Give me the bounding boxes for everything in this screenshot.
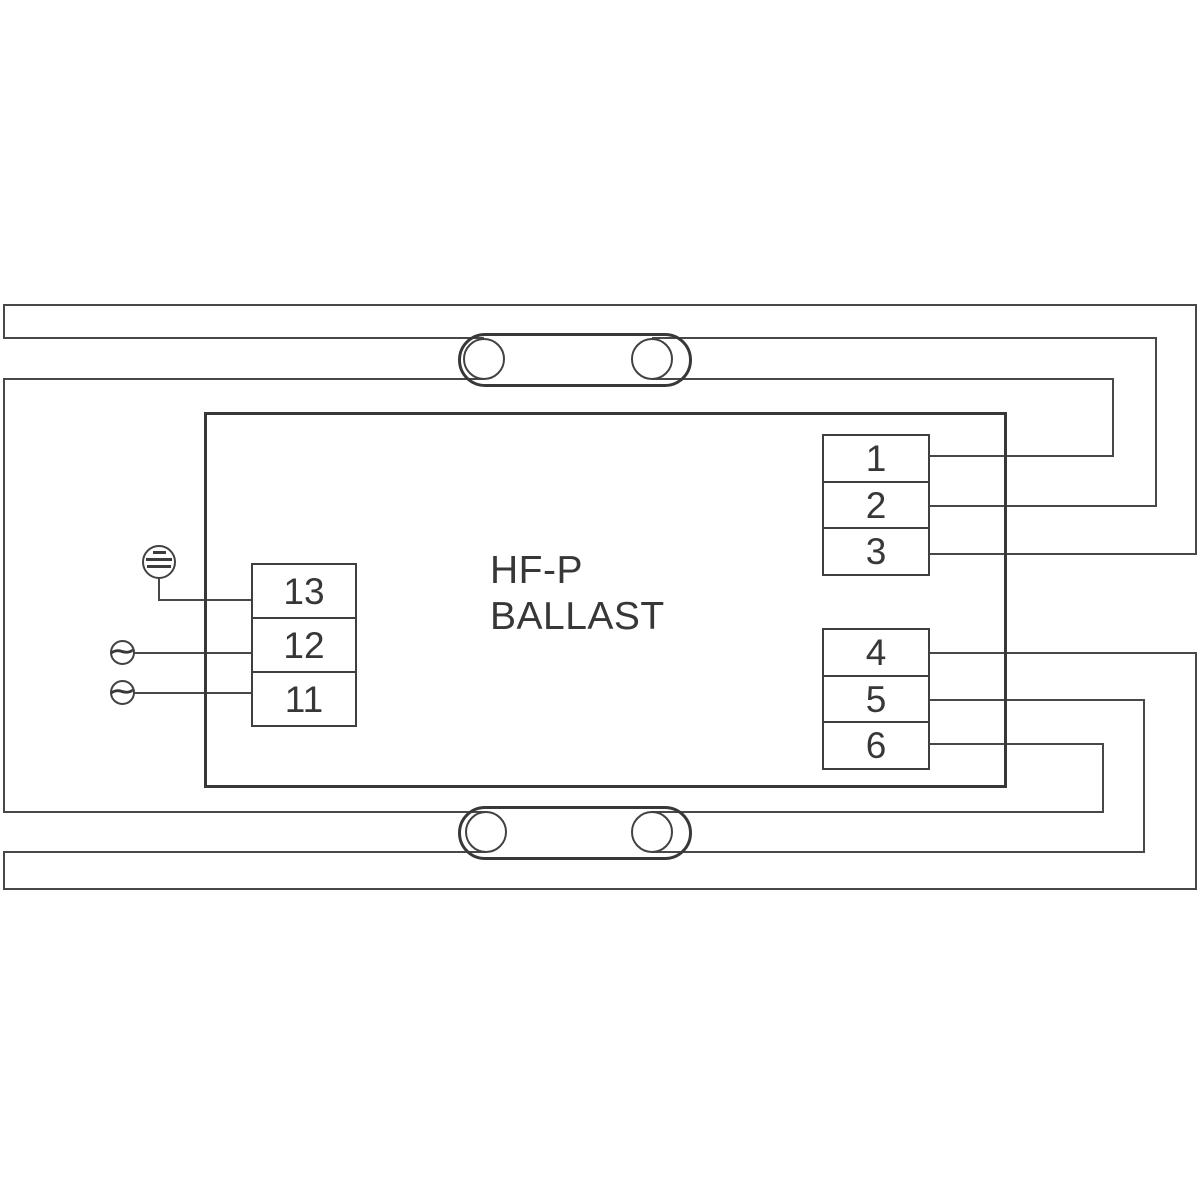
terminal-label: 4 xyxy=(866,634,887,671)
terminal-block-lamp1: 1 2 3 xyxy=(822,434,930,576)
lamp-electrode-icon xyxy=(631,338,673,380)
wire-segment xyxy=(652,811,1104,813)
terminal-cell-12: 12 xyxy=(253,617,355,671)
ac-tilde-glyph: ∼ xyxy=(109,640,136,664)
terminal-label: 11 xyxy=(285,681,323,718)
earth-ground-bar xyxy=(146,558,172,561)
terminal-label: 2 xyxy=(866,487,887,524)
terminal-cell-1: 1 xyxy=(824,436,928,481)
wire-segment xyxy=(3,851,486,853)
ac-tilde-glyph: ∼ xyxy=(109,680,136,704)
wire-segment xyxy=(3,337,484,339)
wire-segment xyxy=(3,379,5,813)
wire-segment xyxy=(3,852,5,890)
terminal-cell-6: 6 xyxy=(824,721,928,768)
wire-segment xyxy=(3,304,1197,306)
wire-segment xyxy=(652,851,1145,853)
wire-segment xyxy=(3,888,1197,890)
wire-segment xyxy=(3,378,484,380)
lamp-electrode-icon xyxy=(463,338,505,380)
wire-segment xyxy=(652,378,1114,380)
wiring-diagram: HF-P BALLAST 13 12 11 1 2 3 4 xyxy=(0,0,1200,1200)
ac-source-icon: ∼ xyxy=(110,640,135,665)
wire-segment xyxy=(3,305,5,339)
wire-segment xyxy=(3,811,486,813)
terminal-cell-3: 3 xyxy=(824,527,928,574)
lamp-electrode-icon xyxy=(465,811,507,853)
earth-ground-bar xyxy=(153,551,166,554)
terminal-cell-5: 5 xyxy=(824,675,928,722)
terminal-cell-11: 11 xyxy=(253,671,355,725)
ac-source-icon: ∼ xyxy=(110,680,135,705)
terminal-label: 3 xyxy=(866,533,887,570)
terminal-label: 6 xyxy=(866,727,887,764)
wire-segment xyxy=(652,337,1157,339)
wire-segment xyxy=(1195,653,1197,890)
ballast-title-line1: HF-P xyxy=(490,548,665,594)
terminal-label: 5 xyxy=(866,681,887,718)
terminal-cell-2: 2 xyxy=(824,481,928,528)
wire-segment xyxy=(1155,338,1157,507)
terminal-cell-4: 4 xyxy=(824,630,928,675)
ballast-title-line2: BALLAST xyxy=(490,594,665,640)
terminal-block-mains: 13 12 11 xyxy=(251,563,357,727)
terminal-label: 12 xyxy=(283,627,324,664)
wire-segment xyxy=(1195,305,1197,555)
terminal-cell-13: 13 xyxy=(253,565,355,617)
lamp-electrode-icon xyxy=(631,811,673,853)
earth-ground-bar xyxy=(147,565,171,568)
terminal-label: 1 xyxy=(866,440,887,477)
wire-segment xyxy=(1143,700,1145,853)
ballast-title: HF-P BALLAST xyxy=(490,548,665,640)
wire-segment xyxy=(1102,744,1104,813)
terminal-block-lamp2: 4 5 6 xyxy=(822,628,930,770)
wire-segment xyxy=(1112,379,1114,457)
terminal-label: 13 xyxy=(283,573,324,610)
